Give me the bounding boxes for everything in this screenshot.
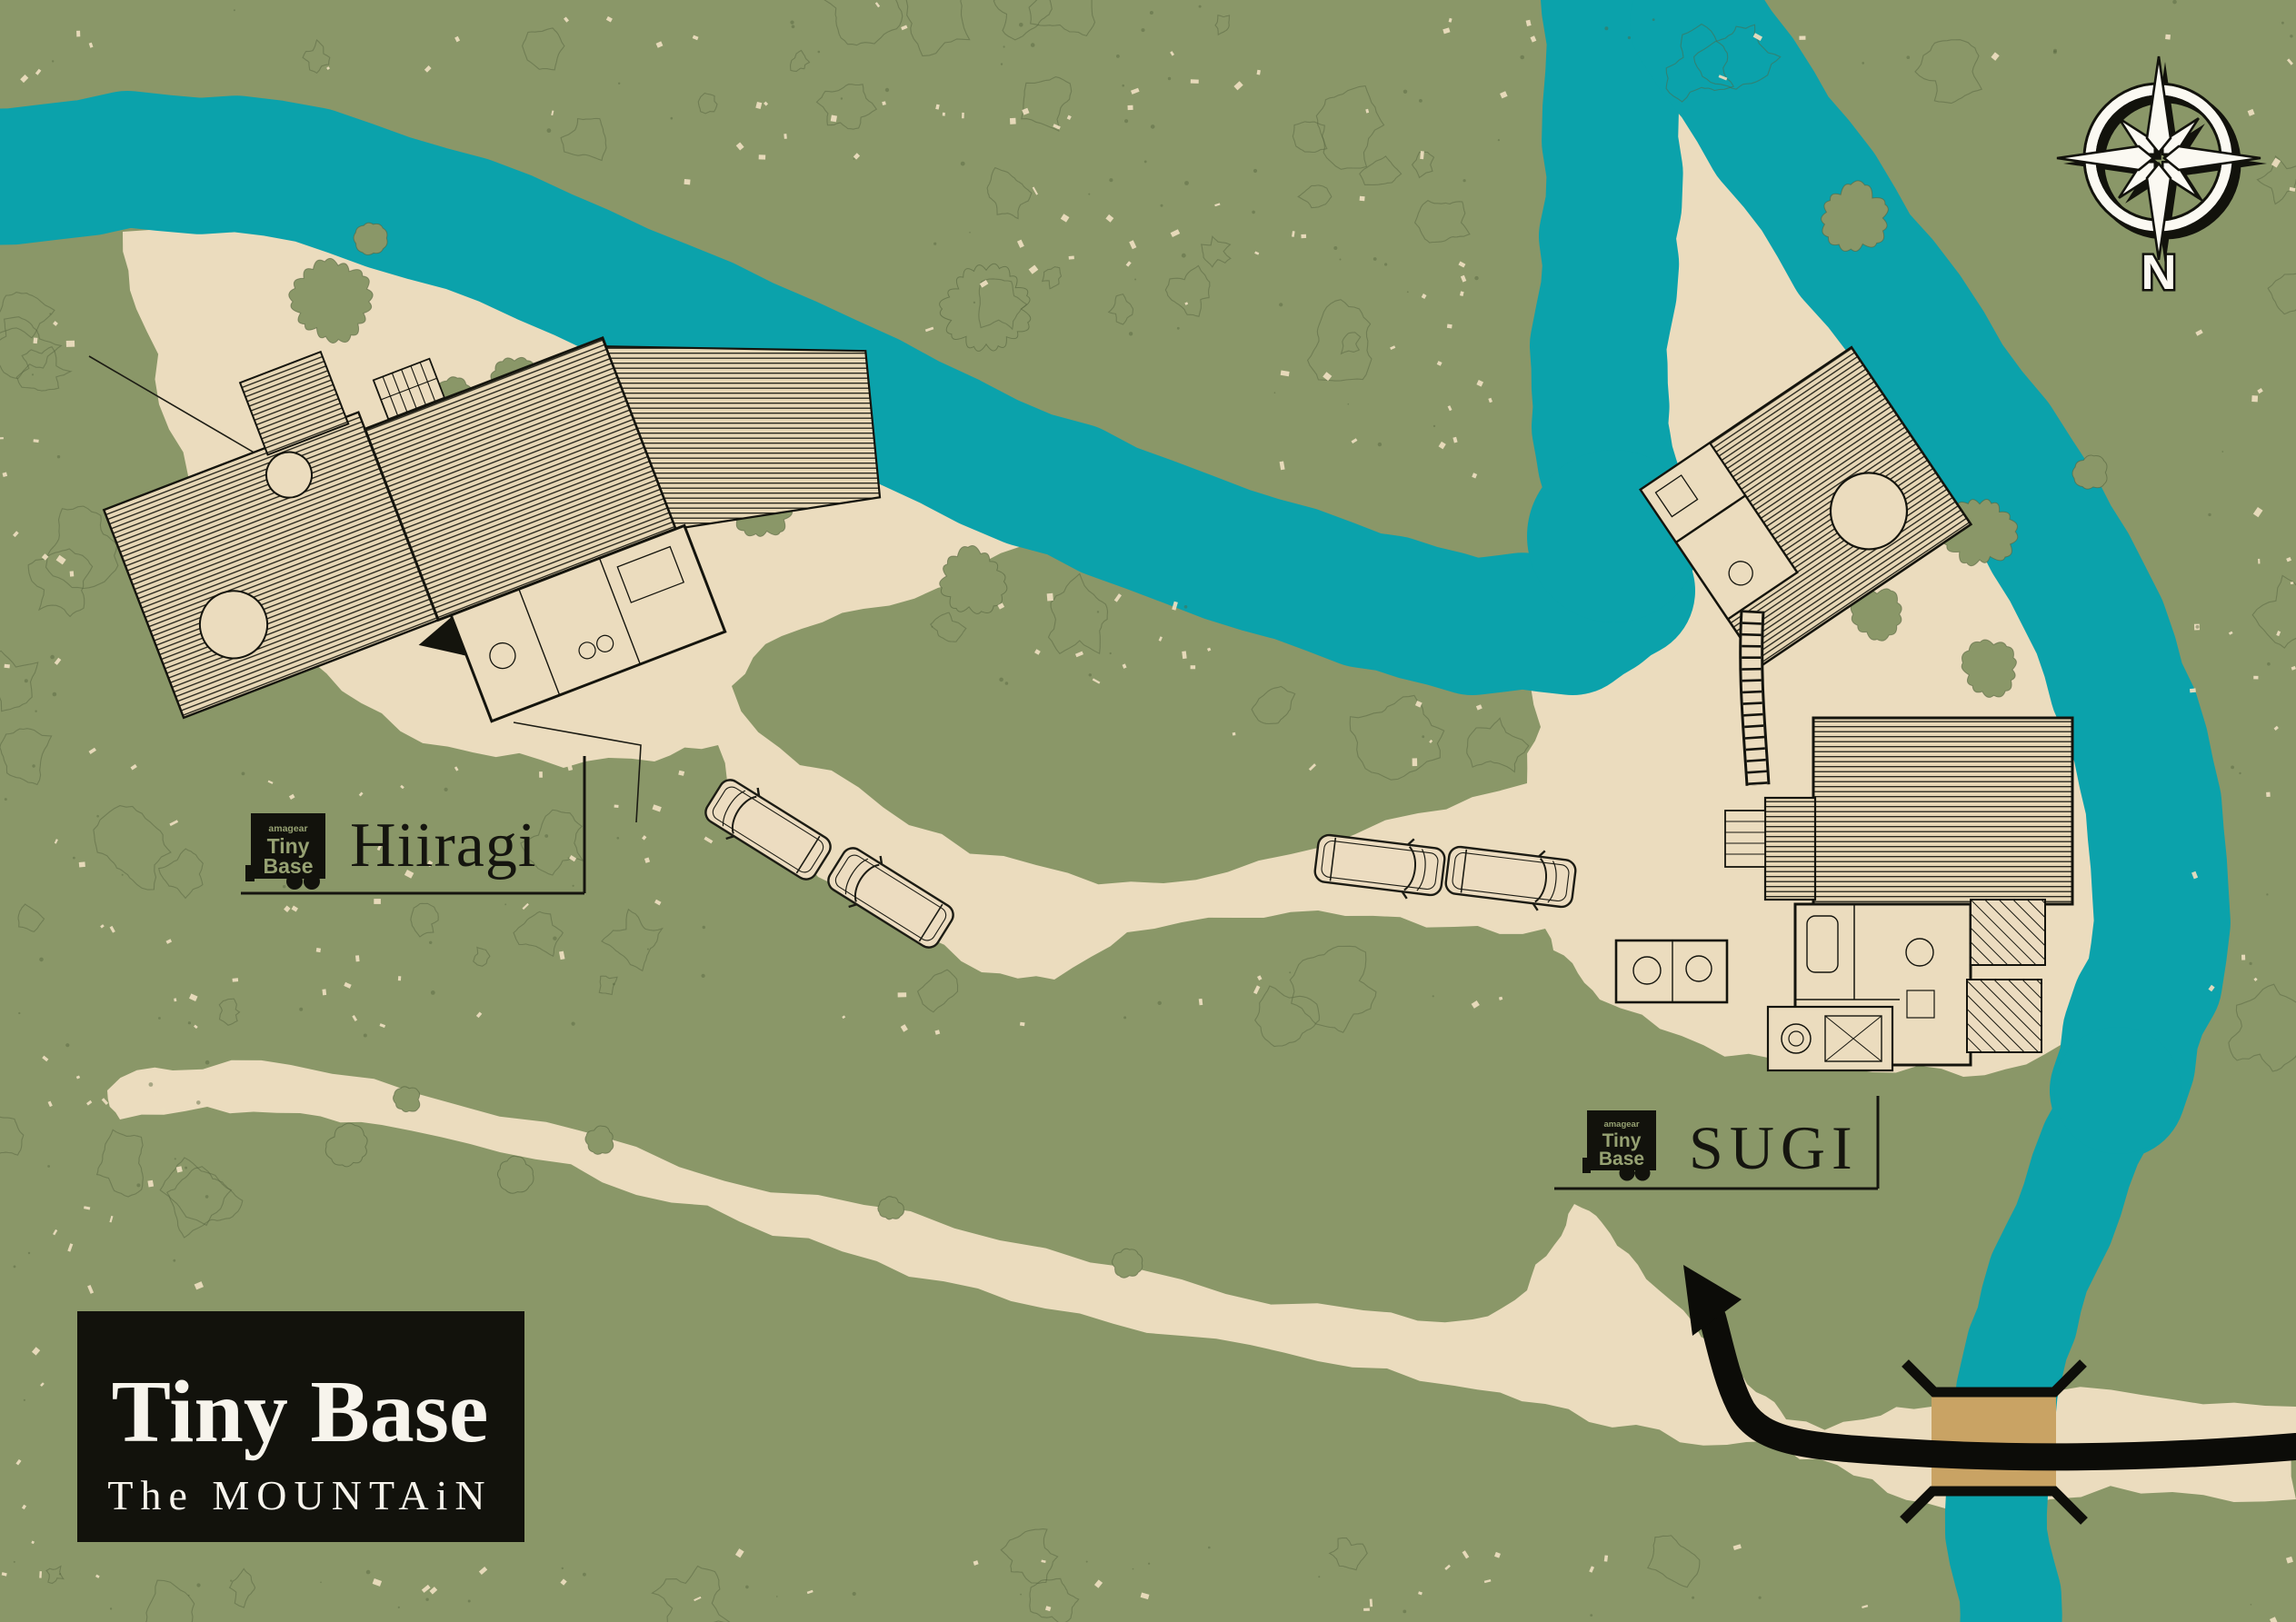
svg-text:amagear: amagear xyxy=(1603,1119,1639,1129)
compass-north-label: N xyxy=(2141,245,2177,300)
map-title: Tiny Base xyxy=(112,1363,489,1461)
sugi-label-text: SUGI xyxy=(1689,1113,1859,1182)
tinybase-logo-icon: amagear Tiny Base xyxy=(1582,1110,1656,1181)
svg-text:Base: Base xyxy=(1599,1149,1644,1169)
entry-steps xyxy=(1725,811,1765,867)
map-canvas: amagear Tiny Base Hiiragi amagear Tiny B… xyxy=(0,0,2296,1622)
svg-text:Base: Base xyxy=(264,854,314,878)
site-map: amagear Tiny Base Hiiragi amagear Tiny B… xyxy=(0,0,2296,1622)
tinybase-logo-icon: amagear Tiny Base xyxy=(245,813,325,890)
svg-text:amagear: amagear xyxy=(268,823,307,834)
title-block: Tiny Base The MOUNTAiN xyxy=(77,1311,524,1542)
map-subtitle: The MOUNTAiN xyxy=(107,1472,492,1518)
hiiragi-label-text: Hiiragi xyxy=(350,811,536,881)
